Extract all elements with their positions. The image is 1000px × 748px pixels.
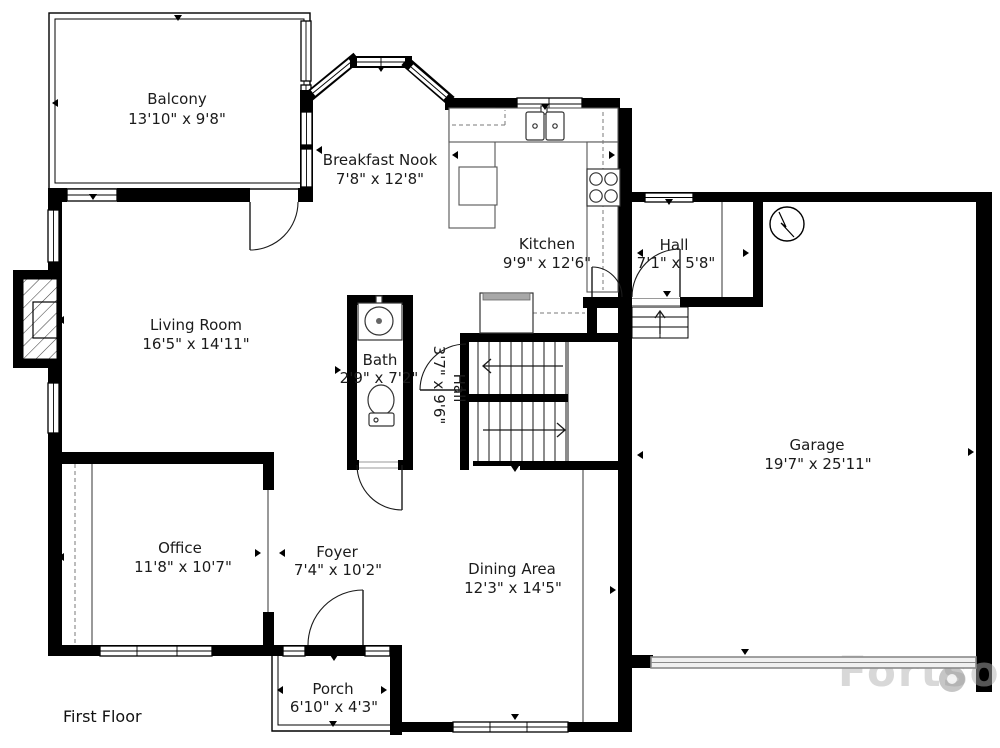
foyer-label: Foyer xyxy=(316,543,358,561)
hall-stairs-dims: 3'7" x 9'6" xyxy=(430,346,448,425)
bath-threshold xyxy=(359,462,398,468)
bath-door xyxy=(357,465,402,510)
watermark: Fortso xyxy=(838,647,1000,696)
office-label: Office xyxy=(158,539,202,557)
breakfast-nook-west-windows xyxy=(301,112,312,187)
dining-windows xyxy=(453,722,568,732)
stove-icon xyxy=(587,169,620,206)
toilet-icon xyxy=(368,385,394,426)
porch-dims: 6'10" x 4'3" xyxy=(290,698,378,716)
garage-dims: 19'7" x 25'11" xyxy=(764,455,871,473)
hall-upper-dims: 7'1" x 5'8" xyxy=(637,254,716,272)
dining-area-dims: 12'3" x 14'5" xyxy=(464,579,562,597)
foyer-dims: 7'4" x 10'2" xyxy=(294,561,382,579)
refrigerator-icon xyxy=(480,293,533,333)
office-dims: 11'8" x 10'7" xyxy=(134,558,232,576)
kitchen-label: Kitchen xyxy=(519,235,575,253)
balcony-label: Balcony xyxy=(147,90,207,108)
garage-label: Garage xyxy=(790,436,845,454)
balcony-dims: 13'10" x 9'8" xyxy=(128,110,226,128)
floor-plan-drawing: Fortso Balcony 13'10" x 9'8" Breakfast N… xyxy=(0,0,1000,748)
stair-treads-lower xyxy=(478,402,566,461)
breakfast-nook-label: Breakfast Nook xyxy=(323,151,438,169)
stair-treads-upper xyxy=(478,342,566,394)
balcony-door xyxy=(250,202,298,250)
kitchen-dims: 9'9" x 12'6" xyxy=(503,254,591,272)
living-room-label: Living Room xyxy=(150,316,242,334)
watermark-text: Fortso xyxy=(838,647,1000,696)
garage-entry-steps xyxy=(632,299,688,339)
front-door xyxy=(308,590,363,645)
porch-label: Porch xyxy=(312,680,353,698)
dishwasher-icon xyxy=(459,167,497,205)
floor-title: First Floor xyxy=(63,707,142,726)
bath-label: Bath xyxy=(363,351,398,369)
dining-area-label: Dining Area xyxy=(468,560,556,578)
hall-stairs-label: Hall xyxy=(450,374,468,403)
walls xyxy=(48,90,992,735)
office-windows xyxy=(100,646,212,656)
breakfast-nook-dims: 7'8" x 12'8" xyxy=(336,170,424,188)
floor-plan-page: Fortso Balcony 13'10" x 9'8" Breakfast N… xyxy=(0,0,1000,748)
stair-direction-arrow-up xyxy=(483,359,563,373)
bath-sink-icon xyxy=(358,296,402,340)
bay-window xyxy=(306,57,451,101)
hall-upper-label: Hall xyxy=(660,236,689,254)
bath-dims: 2'9" x 7'2" xyxy=(340,369,419,387)
living-room-dims: 16'5" x 14'11" xyxy=(142,335,249,353)
stair-direction-arrow-down xyxy=(483,423,565,437)
fireplace-icon xyxy=(13,270,57,368)
garage-door xyxy=(651,657,976,668)
water-heater-icon xyxy=(770,207,804,241)
